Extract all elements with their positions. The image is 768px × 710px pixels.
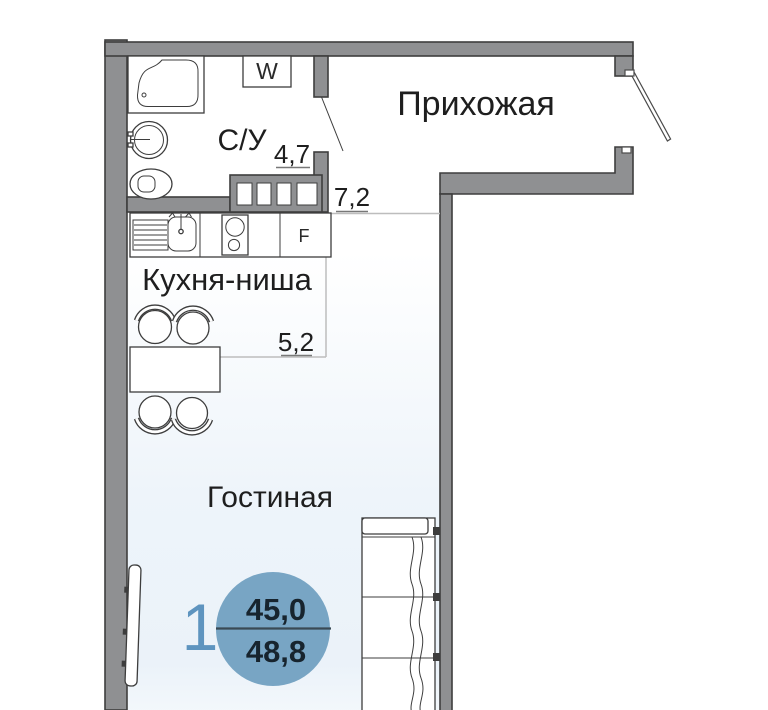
sofa-armrest <box>362 518 428 534</box>
wall-bathroom-pier-upper <box>314 56 328 97</box>
living-area-value: 45,0 <box>246 592 306 627</box>
room-label-kitchen: Кухня-ниша <box>142 262 313 297</box>
entrance-door-strike <box>622 147 631 153</box>
area-value-kitchen: 5,2 <box>278 327 314 357</box>
sink-faucet-base <box>179 229 183 233</box>
stove-body <box>222 215 248 255</box>
vent-duct <box>297 183 317 205</box>
room-count: 1 <box>182 590 219 664</box>
fridge-label: F <box>299 226 310 246</box>
area-value-hallway: 7,2 <box>334 182 370 212</box>
chair <box>177 398 208 429</box>
wall-bathroom-bottom <box>127 197 230 212</box>
washer-icon: W <box>243 56 291 87</box>
washbasin-icon <box>128 122 168 159</box>
area-value-bathroom: 4,7 <box>274 139 310 169</box>
dining-table <box>130 347 220 392</box>
toilet-icon <box>130 169 172 199</box>
bathtub-outline <box>128 56 204 113</box>
sofa-wall-mount <box>433 653 440 661</box>
wall-top <box>105 42 633 56</box>
stove-icon <box>222 215 248 255</box>
sofa-body <box>362 518 435 710</box>
radiator-bracket <box>123 629 127 635</box>
vent-duct <box>237 183 252 205</box>
sofa-wall-mount <box>433 593 440 601</box>
washbasin-tap <box>128 143 133 147</box>
washbasin-tap <box>128 132 133 136</box>
sofa-wall-mount <box>433 527 440 535</box>
washer-label: W <box>256 58 278 84</box>
room-label-bathroom: С/У <box>217 124 267 157</box>
vent-duct <box>277 183 291 205</box>
sofa <box>362 518 440 710</box>
entrance-door-hinge <box>625 70 634 76</box>
chair <box>139 311 172 344</box>
wall-left <box>105 40 127 710</box>
total-area-value: 48,8 <box>246 634 306 669</box>
floor-plan-drawing: W F <box>0 0 768 710</box>
floor-plan: W F <box>0 0 768 710</box>
chair <box>139 396 171 428</box>
vent-block <box>230 175 322 212</box>
fridge-icon: F <box>299 226 310 246</box>
toilet-bowl <box>130 169 172 199</box>
wall-right <box>440 194 452 710</box>
room-label-hallway: Прихожая <box>397 85 555 123</box>
radiator-bracket <box>122 661 126 667</box>
room-label-living: Гостиная <box>207 481 333 514</box>
bathtub-icon <box>128 56 204 113</box>
bathroom-door-leaf <box>322 97 344 151</box>
chair <box>177 312 209 344</box>
entrance-door-leaf <box>631 73 670 141</box>
radiator-bracket <box>124 587 128 593</box>
vent-duct <box>257 183 271 205</box>
wall-hallway-bottom <box>440 147 633 194</box>
